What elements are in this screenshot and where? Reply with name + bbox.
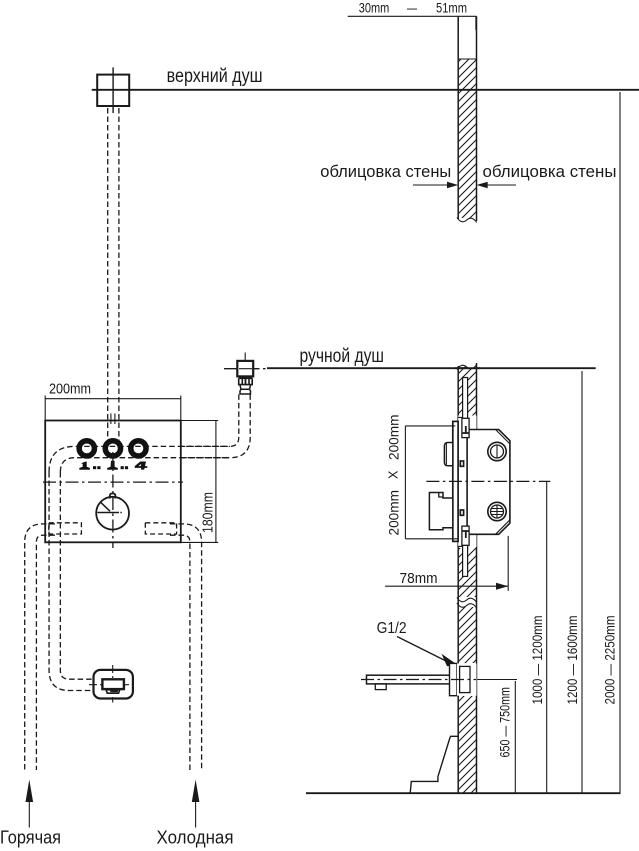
svg-text:2000 — 2250mm: 2000 — 2250mm bbox=[602, 616, 618, 705]
svg-text:51mm: 51mm bbox=[436, 0, 467, 16]
svg-text:Горячая: Горячая bbox=[0, 828, 61, 848]
svg-text:—: — bbox=[407, 0, 417, 16]
svg-text:200mm: 200mm bbox=[49, 382, 91, 398]
svg-text:78mm: 78mm bbox=[400, 570, 438, 587]
svg-text:верхний душ: верхний душ bbox=[167, 66, 263, 87]
svg-text:облицовка стены: облицовка стены bbox=[320, 162, 451, 181]
svg-text:30mm: 30mm bbox=[359, 0, 390, 16]
svg-text:облицовка стены: облицовка стены bbox=[483, 162, 617, 181]
svg-text:200mm: 200mm bbox=[386, 415, 402, 461]
svg-text:ручной душ: ручной душ bbox=[300, 346, 385, 367]
svg-text:X: X bbox=[387, 470, 401, 479]
svg-text:1000 — 1200mm: 1000 — 1200mm bbox=[529, 616, 545, 705]
svg-text:Холодная: Холодная bbox=[157, 828, 234, 848]
svg-text:180mm: 180mm bbox=[201, 492, 217, 533]
svg-text:200mm: 200mm bbox=[386, 490, 402, 536]
svg-text:1200 — 1600mm: 1200 — 1600mm bbox=[564, 616, 580, 705]
svg-text:650 — 750mm: 650 — 750mm bbox=[497, 687, 513, 758]
svg-text:G1/2: G1/2 bbox=[377, 620, 407, 637]
